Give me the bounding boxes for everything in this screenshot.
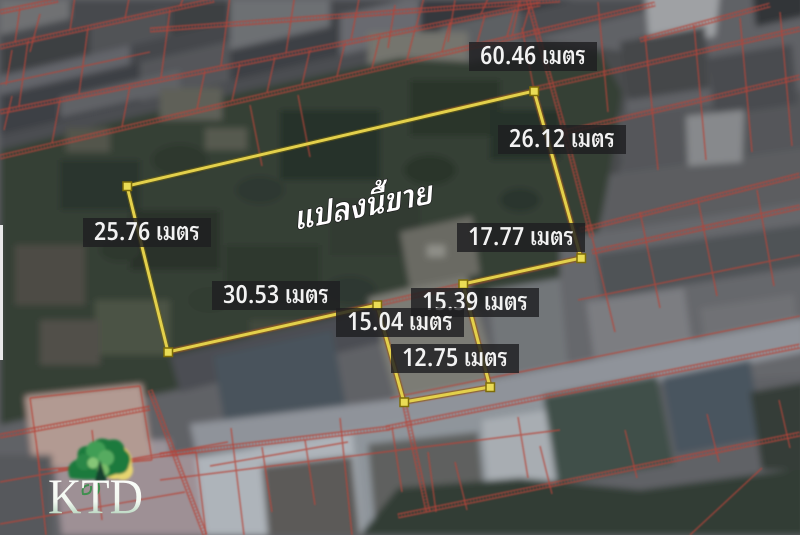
svg-text:KTD: KTD [48, 468, 143, 524]
